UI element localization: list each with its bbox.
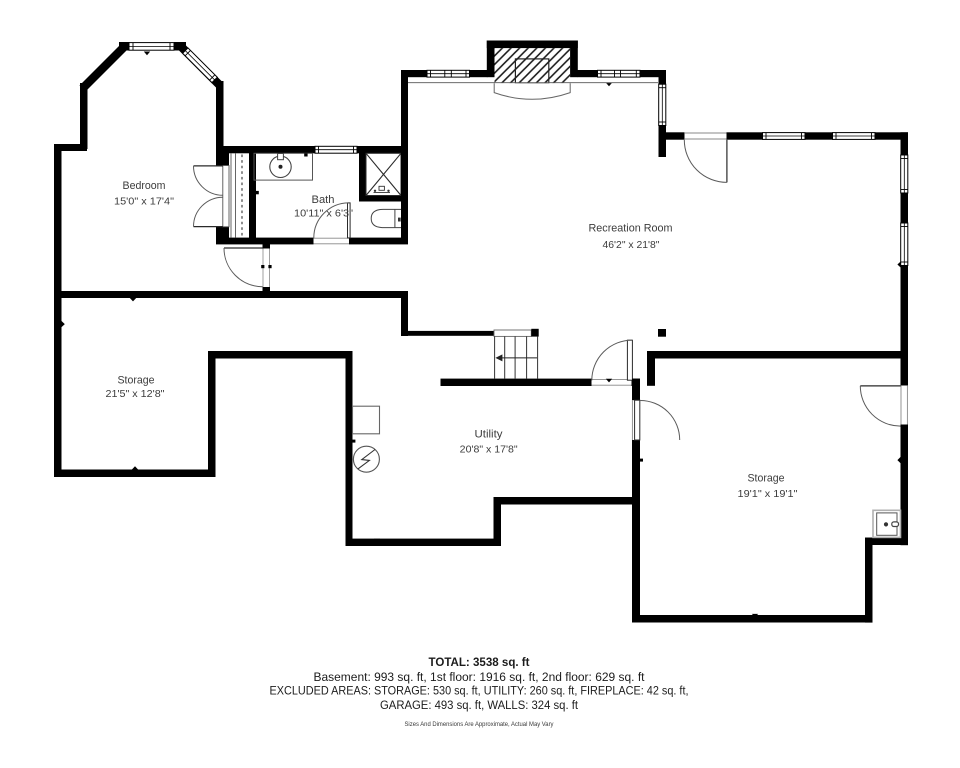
svg-text:Sizes And Dimensions Are Appro: Sizes And Dimensions Are Approximate, Ac… [405,721,555,728]
svg-text:20'8" x 17'8": 20'8" x 17'8" [460,444,518,456]
svg-text:EXCLUDED AREAS: STORAGE: 530 s: EXCLUDED AREAS: STORAGE: 530 sq. ft, UTI… [270,684,689,698]
svg-text:Basement: 993 sq. ft, 1st floo: Basement: 993 sq. ft, 1st floor: 1916 sq… [314,670,646,684]
svg-text:19'1" x 19'1": 19'1" x 19'1" [738,488,798,500]
svg-text:15'0" x 17'4": 15'0" x 17'4" [114,196,174,208]
svg-text:Storage: Storage [118,375,155,387]
svg-text:GARAGE: 493 sq. ft, WALLS: 324: GARAGE: 493 sq. ft, WALLS: 324 sq. ft [380,698,579,712]
svg-text:TOTAL: 3538 sq. ft: TOTAL: 3538 sq. ft [429,655,530,669]
svg-text:Storage: Storage [748,473,785,485]
svg-text:Bedroom: Bedroom [123,180,166,192]
svg-text:21'5" x 12'8": 21'5" x 12'8" [106,388,165,400]
svg-text:46'2" x 21'8": 46'2" x 21'8" [603,239,660,251]
svg-text:10'11" x 6'3": 10'11" x 6'3" [294,208,353,220]
svg-text:Utility: Utility [475,429,504,441]
svg-text:Recreation Room: Recreation Room [589,223,673,235]
svg-text:Bath: Bath [312,194,335,206]
